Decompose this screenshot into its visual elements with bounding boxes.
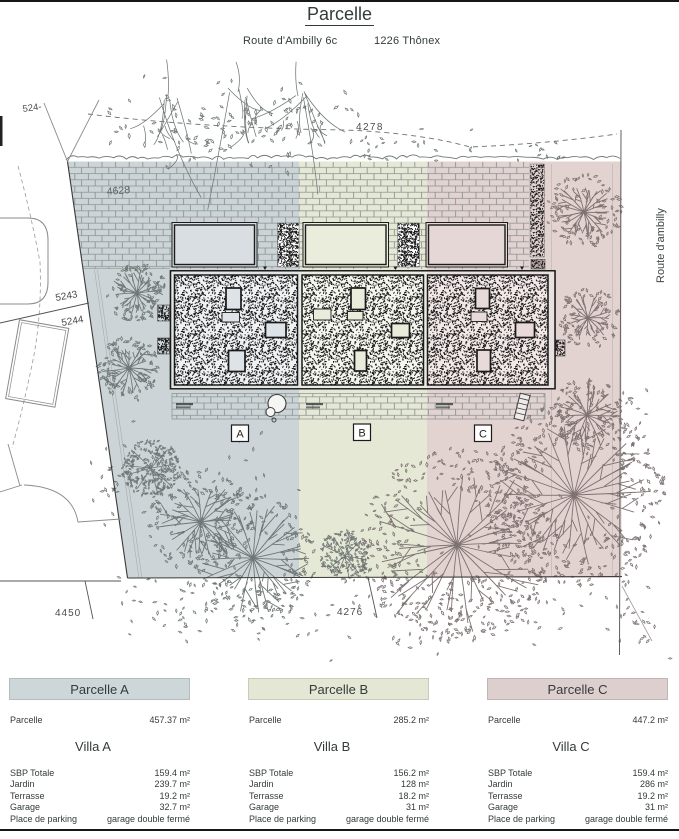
svg-text:4276: 4276 bbox=[337, 607, 363, 618]
svg-text:B: B bbox=[358, 428, 365, 440]
svg-text:5243: 5243 bbox=[55, 289, 79, 304]
svg-text:4278: 4278 bbox=[356, 122, 384, 133]
svg-text:A: A bbox=[236, 429, 244, 441]
svg-text:4628: 4628 bbox=[106, 184, 130, 198]
svg-text:Route d'ambilly: Route d'ambilly bbox=[655, 208, 667, 283]
svg-text:524-: 524- bbox=[22, 101, 42, 115]
svg-text:4450: 4450 bbox=[55, 608, 81, 619]
svg-text:C: C bbox=[479, 429, 487, 441]
svg-text:5244: 5244 bbox=[61, 314, 85, 329]
